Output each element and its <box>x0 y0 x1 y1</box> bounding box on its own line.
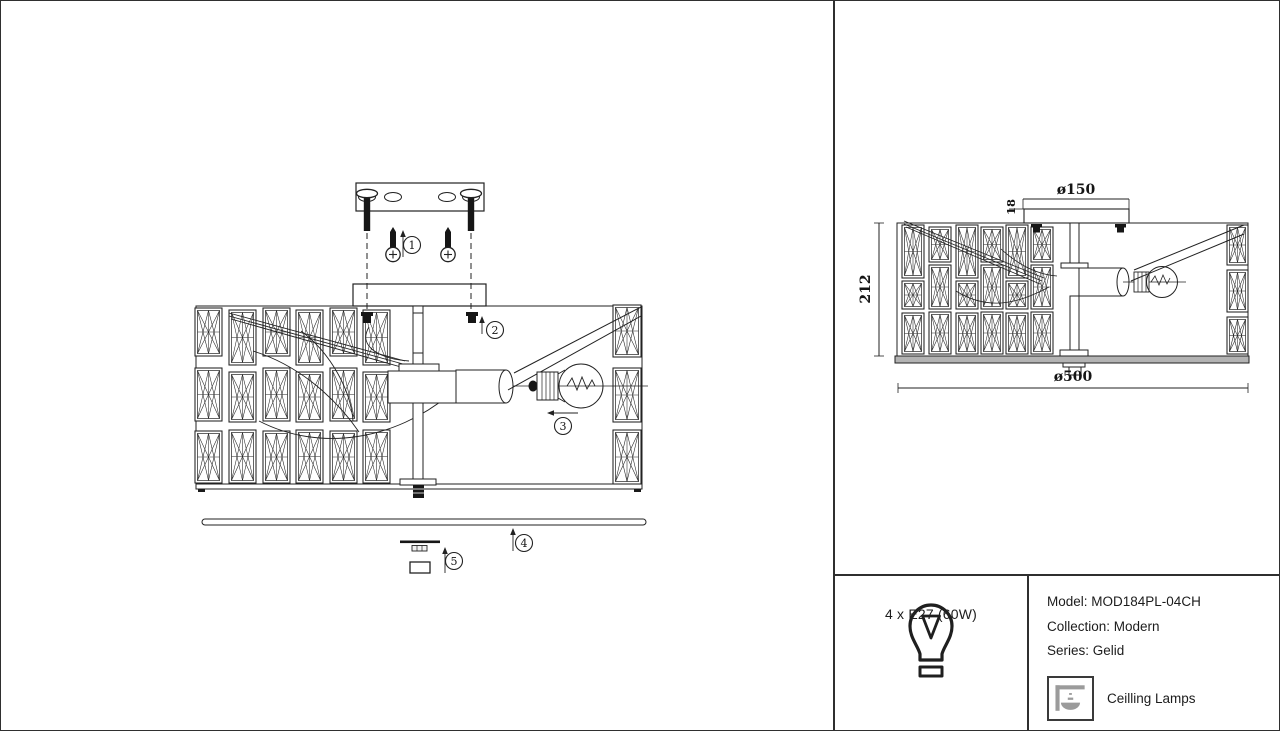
crystal-panel <box>1031 312 1053 354</box>
crystal-panel <box>363 372 390 422</box>
crystal-panel <box>229 310 256 365</box>
callout-3-number: 3 <box>560 420 567 433</box>
finial-parts <box>400 541 440 574</box>
crystal-panel <box>1227 317 1248 354</box>
spec-sheet-page: 1 2 3 4 5 <box>0 0 1280 731</box>
callout-1-number: 1 <box>409 239 416 252</box>
light-bulb-icon <box>904 598 958 684</box>
callout-4: 4 <box>516 535 533 552</box>
series-line: Series: Gelid <box>1047 639 1280 664</box>
crystal-panel <box>263 368 290 421</box>
dimensioned-side-view: ø150 18 212 ø500 <box>834 1 1280 574</box>
ceiling-lamp-icon-box <box>1047 676 1094 721</box>
dim-canopy-height-label: 18 <box>1004 199 1018 215</box>
canopy <box>353 284 486 306</box>
crystal-panel <box>263 431 290 483</box>
crystal-panel <box>330 308 357 356</box>
crystal-panel <box>296 372 323 422</box>
ceiling-lamp-icon <box>1049 678 1092 719</box>
loose-screw <box>386 227 400 262</box>
product-info-panel: 4 x E27 (60W) Model: MOD184PL-04CH Colle… <box>835 574 1280 731</box>
crystal-panel <box>1006 281 1028 309</box>
crystal-panel <box>902 313 924 354</box>
callout-5: 5 <box>446 553 463 570</box>
crystal-panel <box>195 368 222 421</box>
callout-2-number: 2 <box>492 324 499 337</box>
callout-5-number: 5 <box>451 555 458 568</box>
crystal-panel <box>195 308 222 356</box>
exploded-assembly-drawing: 1 2 3 4 5 <box>1 1 834 731</box>
model-line: Model: MOD184PL-04CH <box>1047 590 1280 615</box>
collection-line: Collection: Modern <box>1047 615 1280 640</box>
dim-total-height-label: 212 <box>858 274 874 303</box>
crystal-panel <box>330 368 357 421</box>
crystal-panel <box>229 372 256 422</box>
dimension-total-height: 212 <box>858 223 884 356</box>
crystal-panel <box>981 312 1003 354</box>
canopy <box>1024 209 1129 223</box>
loose-screw <box>441 227 455 262</box>
crystal-panel <box>195 431 222 483</box>
dimension-top-diameter: ø150 <box>1023 182 1129 209</box>
crystal-panel <box>363 430 390 483</box>
dimension-total-diameter: ø500 <box>898 369 1248 393</box>
dim-top-diameter-label: ø150 <box>1057 182 1096 198</box>
crystal-panel <box>1006 313 1028 354</box>
crystal-panel <box>613 430 641 484</box>
crystal-panel <box>929 312 951 354</box>
callout-2: 2 <box>487 322 504 339</box>
crystal-panel <box>956 225 978 278</box>
diffuser-plate <box>202 519 646 525</box>
dimension-canopy-height: 18 <box>1004 199 1024 215</box>
callout-4-number: 4 <box>521 537 528 550</box>
callout-3: 3 <box>555 418 572 435</box>
dim-total-diameter-label: ø500 <box>1054 369 1093 385</box>
mounting-bracket <box>356 183 484 262</box>
crystal-panel <box>902 281 924 309</box>
crystal-panel <box>613 368 641 422</box>
crystal-panel <box>613 305 641 357</box>
crystal-panel <box>956 281 978 309</box>
crystal-panel <box>1227 270 1248 312</box>
product-details-cell: Model: MOD184PL-04CH Collection: Modern … <box>1027 576 1280 731</box>
bulb-spec-cell: 4 x E27 (60W) <box>835 576 1027 731</box>
callout-1: 1 <box>404 237 421 254</box>
crystal-panel <box>929 265 951 309</box>
crystal-panel <box>1031 265 1053 309</box>
category-label: Ceilling Lamps <box>1107 691 1196 706</box>
crystal-panel <box>956 313 978 354</box>
crystal-panel <box>229 430 256 483</box>
category-row: Ceilling Lamps <box>1047 676 1280 721</box>
